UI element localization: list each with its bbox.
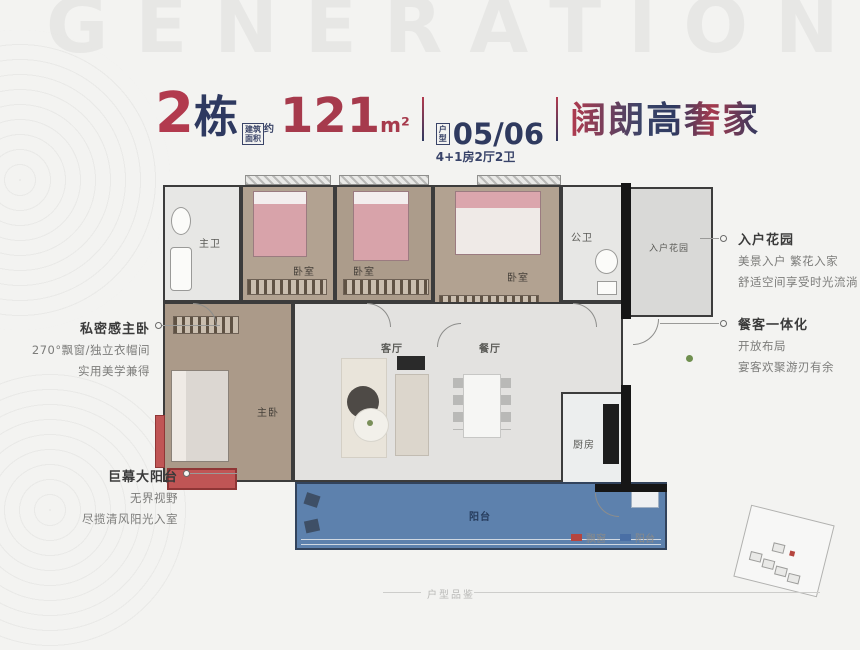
bay-window-left [155, 415, 165, 468]
annotation-line: 无界视野 [28, 490, 178, 506]
window-hatch [339, 175, 429, 185]
slogan: 阔朗高奢家 [570, 91, 760, 143]
chairs-right-icon [501, 378, 511, 430]
background-watermark-text: GENERATION [46, 0, 860, 64]
room-label-bedroom-1: 卧室 [293, 263, 315, 278]
floor-plan: 主卫 卧室 卧室 卧室 公卫 入户花园 主卧 客厅 餐厅 [155, 175, 715, 555]
sofa-icon [395, 374, 429, 456]
room-bedroom-2: 卧室 [335, 185, 433, 302]
window-hatch [245, 175, 331, 185]
footer-label: 户型品鉴 [427, 586, 475, 601]
toilet-icon [171, 207, 191, 235]
header-divider-1 [422, 97, 424, 141]
annotation-line: 宴客欢聚游刃有余 [738, 359, 860, 375]
unit-label-box: 户型 [436, 123, 450, 145]
annotation-private-master: 私密感主卧 270°飘窗/独立衣帽间 实用美学兼得 [30, 318, 150, 379]
wall-segment [595, 484, 667, 492]
area-label-line2: 面积 [245, 134, 261, 143]
bay-window-swatch [571, 534, 582, 541]
site-unit-box [761, 558, 775, 570]
legend-label: 飘窗 [586, 530, 606, 545]
annotation-line: 舒适空间享受时光流淌 [738, 274, 860, 290]
room-label-master-bedroom: 主卧 [257, 404, 279, 419]
annotation-line: 实用美学兼得 [30, 363, 150, 379]
room-kitchen: 厨房 [561, 392, 623, 490]
bed-icon [353, 191, 409, 261]
annotation-title: 巨幕大阳台 [28, 466, 178, 485]
room-label-bedroom-2: 卧室 [353, 263, 375, 278]
room-master-bedroom: 主卧 [163, 302, 293, 482]
site-unit-box [749, 551, 763, 563]
rings-watermark-top [0, 30, 170, 330]
plant-icon [367, 420, 373, 426]
room-label-master-bath: 主卫 [199, 235, 221, 250]
legend-balcony: 阳台 [620, 530, 655, 545]
dining-table-icon [463, 374, 501, 438]
site-highlight-marker [789, 551, 795, 557]
annotation-marker [720, 235, 727, 242]
legend-bay-window: 飘窗 [571, 530, 606, 545]
room-label-public-bath: 公卫 [571, 229, 593, 244]
wardrobe-icon [247, 279, 327, 295]
area-approx-label: 约 [264, 120, 274, 135]
header-divider-2 [556, 97, 558, 141]
washer-icon [631, 490, 659, 508]
annotation-line: 美景入户 繁花入家 [738, 253, 860, 269]
annotation-line: 开放布局 [738, 338, 860, 354]
annotation-title: 私密感主卧 [30, 318, 150, 337]
legend: 飘窗 阳台 [571, 530, 655, 545]
annotation-lead-line [660, 323, 719, 324]
building-number: 2 [155, 86, 194, 142]
area-value: 121 [280, 92, 380, 140]
room-label-balcony: 阳台 [469, 508, 491, 523]
unit-label-line1: 户 [439, 125, 447, 134]
site-unit-box [774, 566, 788, 578]
annotation-entry-garden: 入户花园 美景入户 繁花入家 舒适空间享受时光流淌 [738, 229, 860, 290]
footer-line-right [474, 592, 820, 593]
room-bedroom-1: 卧室 [241, 185, 335, 302]
annotation-title: 餐客一体化 [738, 314, 860, 333]
room-bedroom-3: 卧室 [433, 185, 561, 319]
annotation-line: 尽揽清风阳光入室 [28, 511, 178, 527]
annotation-title: 入户花园 [738, 229, 860, 248]
annotation-lead-line [162, 325, 220, 326]
footer-line-left [383, 592, 421, 593]
bed-icon [455, 191, 541, 255]
room-label-kitchen: 厨房 [573, 436, 595, 451]
annotation-big-balcony: 巨幕大阳台 无界视野 尽揽清风阳光入室 [28, 466, 178, 527]
toilet-icon [595, 249, 618, 274]
unit-group: 户型 05/06 4+1房2厅2卫 [436, 119, 544, 164]
room-master-bath: 主卫 [163, 185, 241, 302]
room-label-dining: 餐厅 [479, 340, 501, 355]
legend-label: 阳台 [635, 530, 655, 545]
wall-segment [621, 385, 631, 492]
building-suffix: 栋 [194, 96, 238, 140]
unit-layout: 4+1房2厅2卫 [436, 151, 544, 164]
unit-numbers: 05/06 [453, 119, 544, 149]
chairs-left-icon [453, 378, 463, 430]
annotation-lead-line [700, 238, 719, 239]
master-bed-icon [171, 370, 229, 462]
area-label-box: 建筑面积 [242, 123, 264, 145]
room-public-bath: 公卫 [561, 185, 623, 302]
annotation-lead-line [190, 473, 238, 474]
annotation-marker [183, 470, 190, 477]
area-unit: m² [380, 113, 410, 137]
annotation-dining-living: 餐客一体化 开放布局 宴客欢聚游刃有余 [738, 314, 860, 375]
tv-console-icon [397, 356, 425, 370]
wardrobe-icon [343, 279, 429, 295]
annotation-marker [720, 320, 727, 327]
site-plan [733, 508, 833, 598]
site-unit-box [787, 573, 801, 585]
annotation-marker [155, 322, 162, 329]
door-arc [633, 319, 659, 345]
unit-label-line2: 型 [439, 134, 447, 143]
window-hatch [477, 175, 561, 185]
sink-icon [597, 281, 617, 295]
site-plan-outline [733, 505, 834, 598]
area-label-line1: 建筑 [245, 125, 261, 134]
header: 2 栋 建筑面积 约 121 m² 户型 05/06 4+1房2厅2卫 阔朗高奢… [155, 86, 760, 152]
balcony-swatch [620, 534, 631, 541]
stove-icon [603, 404, 619, 464]
annotation-line: 270°飘窗/独立衣帽间 [30, 342, 150, 358]
bathtub-icon [170, 247, 192, 291]
wall-segment [621, 183, 631, 319]
room-label-bedroom-3: 卧室 [507, 269, 529, 284]
bed-icon [253, 191, 307, 257]
entry-plant-icon [686, 355, 693, 362]
balcony-plant-icon [303, 492, 320, 508]
site-unit-box [772, 542, 786, 554]
room-label-entry-garden: 入户花园 [649, 241, 689, 254]
balcony-plant-icon [304, 519, 320, 534]
room-entry-garden: 入户花园 [629, 187, 713, 317]
room-label-living: 客厅 [381, 340, 403, 355]
